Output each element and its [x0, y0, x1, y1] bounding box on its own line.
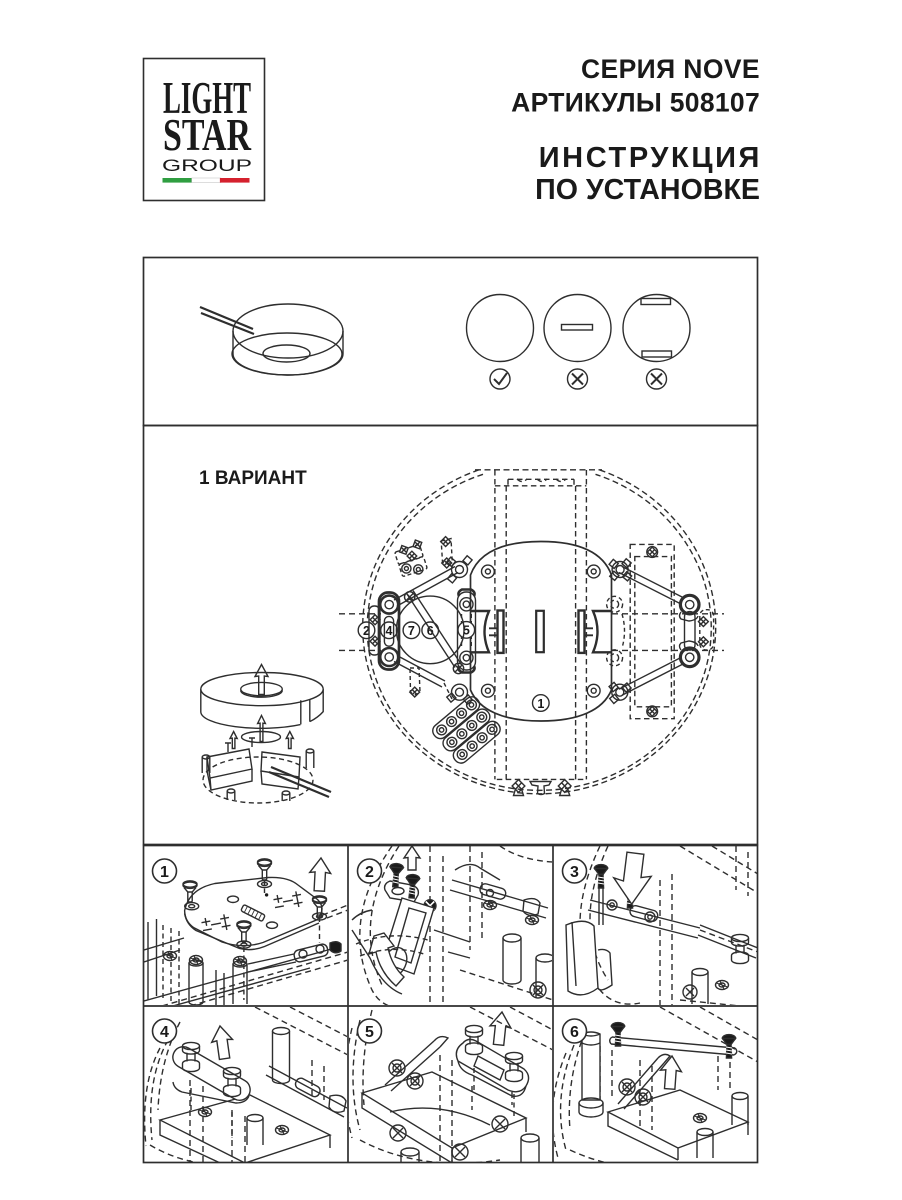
- svg-text:7: 7: [408, 624, 415, 638]
- svg-text:4: 4: [386, 624, 393, 638]
- svg-text:6: 6: [570, 1024, 579, 1041]
- svg-text:STAR: STAR: [163, 109, 252, 160]
- svg-text:ИНСТРУКЦИЯ: ИНСТРУКЦИЯ: [539, 142, 762, 174]
- svg-text:5: 5: [365, 1024, 374, 1041]
- svg-text:1: 1: [160, 864, 169, 881]
- svg-text:GROUP: GROUP: [162, 156, 252, 175]
- svg-text:4: 4: [160, 1024, 169, 1041]
- svg-text:1 ВАРИАНТ: 1 ВАРИАНТ: [199, 468, 307, 489]
- svg-text:1: 1: [537, 697, 544, 711]
- svg-text:3: 3: [570, 864, 579, 881]
- svg-text:АРТИКУЛЫ 508107: АРТИКУЛЫ 508107: [511, 88, 760, 118]
- svg-text:СЕРИЯ NOVE: СЕРИЯ NOVE: [581, 54, 760, 84]
- svg-text:2: 2: [365, 864, 374, 881]
- svg-text:ПО УСТАНОВКЕ: ПО УСТАНОВКЕ: [535, 174, 760, 206]
